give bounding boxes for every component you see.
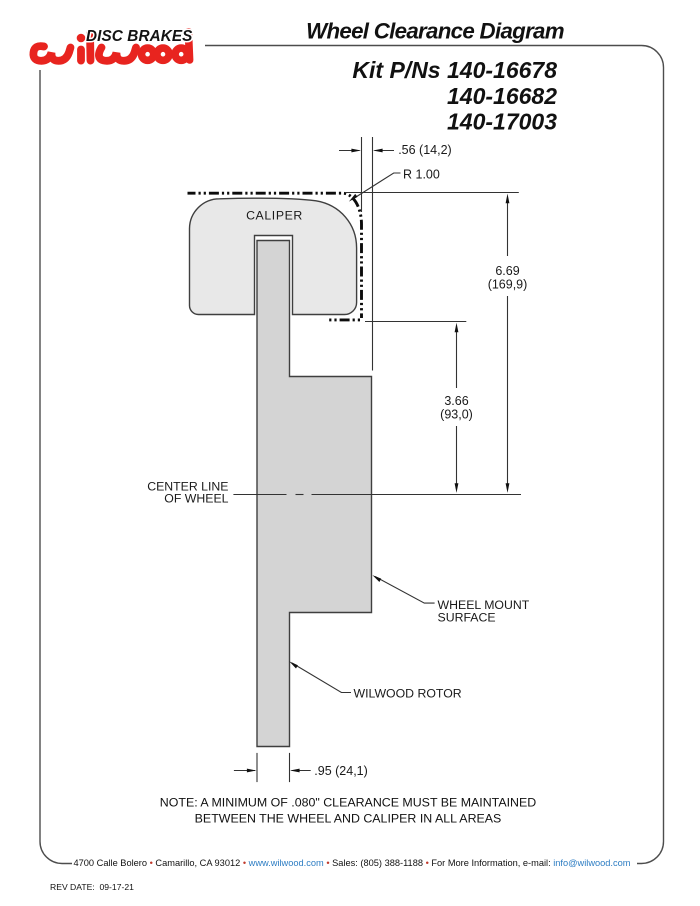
svg-text:Wheel Clearance Diagram: Wheel Clearance Diagram [306,19,564,44]
svg-text:140-17003: 140-17003 [447,109,557,135]
svg-text:.56 (14,2): .56 (14,2) [398,143,452,157]
svg-text:OF WHEEL: OF WHEEL [164,492,228,506]
svg-text:.95 (24,1): .95 (24,1) [314,764,368,778]
svg-text:3.66: 3.66 [444,394,468,408]
svg-text:Kit P/Ns 140-16678: Kit P/Ns 140-16678 [352,57,557,83]
svg-text:WILWOOD ROTOR: WILWOOD ROTOR [354,686,462,700]
svg-text:(169,9): (169,9) [488,278,528,292]
svg-text:NOTE: A MINIMUM OF .080" CLEAR: NOTE: A MINIMUM OF .080" CLEARANCE MUST … [160,796,536,810]
svg-text:4700 Calle Bolero • Camarillo,: 4700 Calle Bolero • Camarillo, CA 93012 … [74,858,631,868]
svg-text:140-16682: 140-16682 [447,83,557,109]
svg-text:(93,0): (93,0) [440,407,473,421]
svg-text:R 1.00: R 1.00 [403,167,440,181]
svg-text:DISC BRAKES: DISC BRAKES [86,28,193,45]
svg-text:BETWEEN THE WHEEL AND CALIPER: BETWEEN THE WHEEL AND CALIPER IN ALL ARE… [195,812,502,826]
svg-text:6.69: 6.69 [495,264,519,278]
svg-text:CALIPER: CALIPER [246,208,303,222]
svg-text:SURFACE: SURFACE [438,611,496,625]
svg-text:REV DATE: 09-17-21: REV DATE: 09-17-21 [50,882,134,892]
